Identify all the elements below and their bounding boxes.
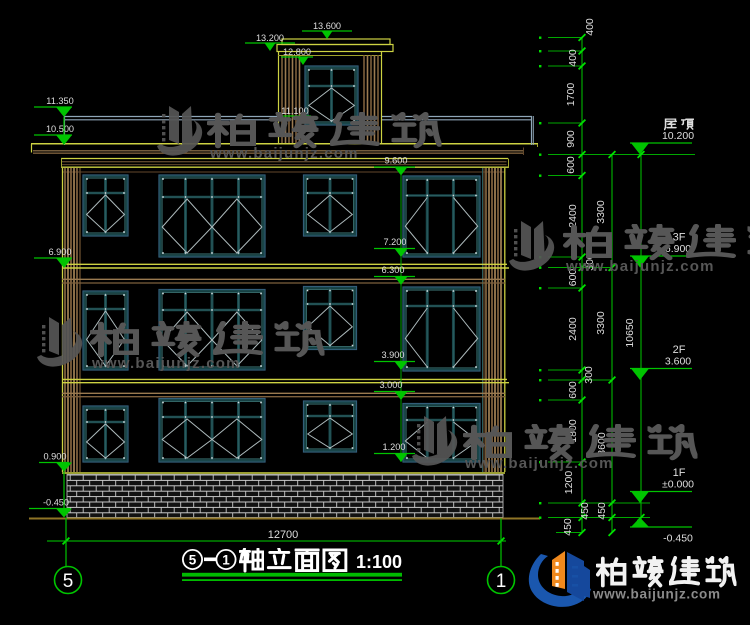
svg-text:12.800: 12.800 (283, 47, 311, 57)
svg-text:13.600: 13.600 (313, 21, 341, 31)
svg-text:10.200: 10.200 (662, 130, 694, 142)
svg-text:1: 1 (496, 571, 507, 592)
svg-text:1:100: 1:100 (356, 552, 402, 572)
svg-text:600: 600 (567, 381, 579, 399)
svg-text:400: 400 (584, 18, 596, 36)
svg-text:3300: 3300 (595, 311, 607, 335)
svg-text:www.baijunjz.com: www.baijunjz.com (209, 145, 359, 162)
svg-text:5: 5 (189, 553, 197, 568)
svg-text:www.baijunjz.com: www.baijunjz.com (592, 587, 721, 602)
svg-text:600: 600 (565, 156, 577, 174)
svg-text:2400: 2400 (567, 317, 579, 341)
svg-text:400: 400 (567, 49, 579, 67)
svg-text:1700: 1700 (565, 83, 577, 107)
svg-text:450: 450 (562, 518, 574, 536)
svg-text:-0.450: -0.450 (43, 498, 69, 508)
svg-text:5: 5 (63, 571, 74, 592)
svg-text:7.200: 7.200 (384, 237, 407, 247)
svg-text:±0.000: ±0.000 (662, 479, 694, 491)
svg-text:9.600: 9.600 (385, 156, 408, 166)
svg-text:2F: 2F (673, 344, 686, 356)
svg-text:2400: 2400 (567, 204, 579, 228)
svg-text:6.300: 6.300 (382, 265, 405, 275)
svg-text:10650: 10650 (624, 318, 636, 347)
svg-text:www.baijunjz.com: www.baijunjz.com (565, 258, 715, 275)
svg-text:900: 900 (565, 130, 577, 148)
svg-text:13.200: 13.200 (256, 33, 284, 43)
svg-text:www.baijunjz.com: www.baijunjz.com (464, 455, 614, 472)
svg-text:300: 300 (583, 366, 595, 384)
svg-text:11.350: 11.350 (46, 96, 73, 106)
svg-text:12700: 12700 (268, 529, 299, 541)
svg-text:1200: 1200 (563, 471, 575, 495)
svg-text:-0.450: -0.450 (663, 533, 693, 545)
svg-text:1F: 1F (673, 467, 686, 479)
svg-text:3F: 3F (673, 232, 686, 244)
svg-text:0.900: 0.900 (44, 452, 67, 462)
svg-text:450: 450 (579, 502, 591, 520)
svg-text:www.baijunjz.com: www.baijunjz.com (91, 355, 241, 372)
svg-text:10.500: 10.500 (46, 124, 74, 134)
svg-text:3.600: 3.600 (665, 356, 691, 368)
svg-text:1: 1 (222, 553, 230, 568)
svg-text:3.900: 3.900 (382, 350, 405, 360)
svg-text:1.200: 1.200 (383, 442, 406, 452)
svg-text:3.000: 3.000 (380, 380, 403, 390)
svg-text:450: 450 (596, 502, 608, 520)
svg-text:3300: 3300 (595, 200, 607, 224)
svg-text:6.900: 6.900 (49, 247, 72, 257)
